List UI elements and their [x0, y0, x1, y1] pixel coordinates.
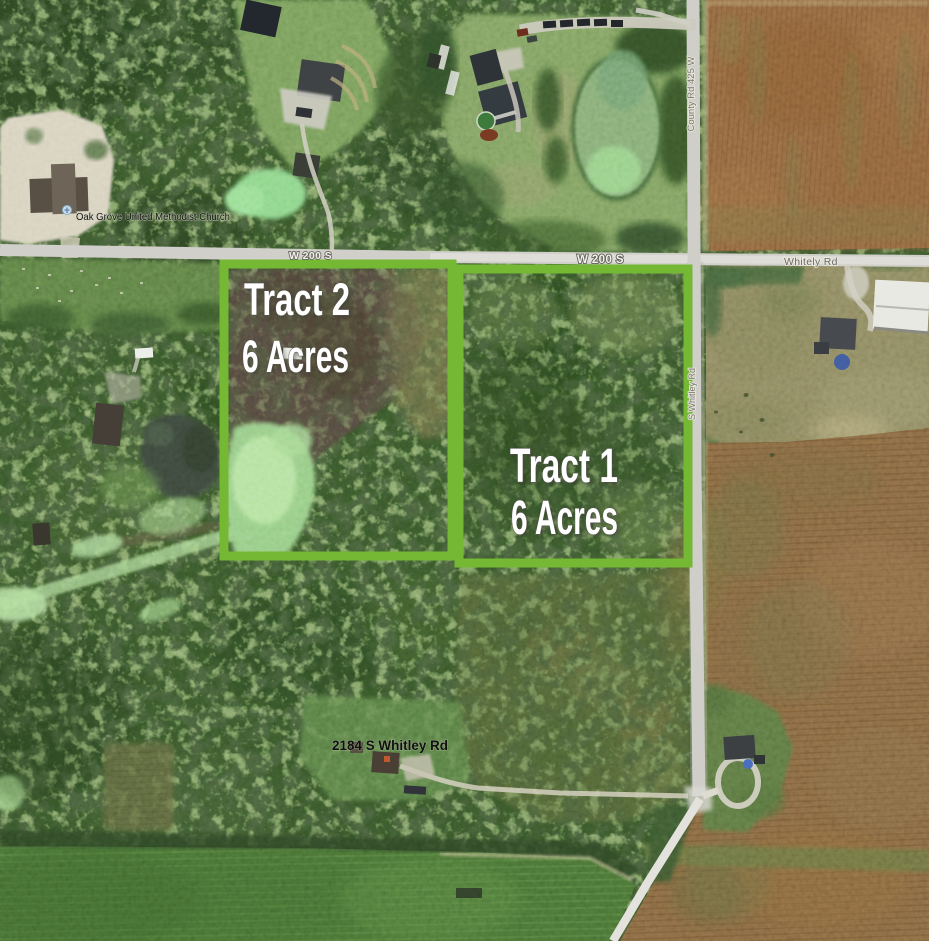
svg-text:Oak Grove United Methodist Chu: Oak Grove United Methodist Church [76, 211, 230, 223]
svg-text:County Rd 425 W: County Rd 425 W [686, 56, 697, 131]
svg-text:2184 S Whitley Rd: 2184 S Whitley Rd [332, 737, 448, 753]
svg-text:S Whitley Rd: S Whitley Rd [687, 368, 697, 420]
svg-text:6 Acres: 6 Acres [511, 492, 618, 545]
svg-text:Tract 2: Tract 2 [244, 274, 350, 325]
svg-text:Tract 1: Tract 1 [510, 440, 618, 493]
svg-text:6 Acres: 6 Acres [242, 331, 349, 382]
svg-text:W 200 S: W 200 S [289, 250, 332, 262]
svg-text:W 200 S: W 200 S [577, 254, 624, 266]
svg-text:Whitely Rd: Whitely Rd [784, 256, 838, 268]
